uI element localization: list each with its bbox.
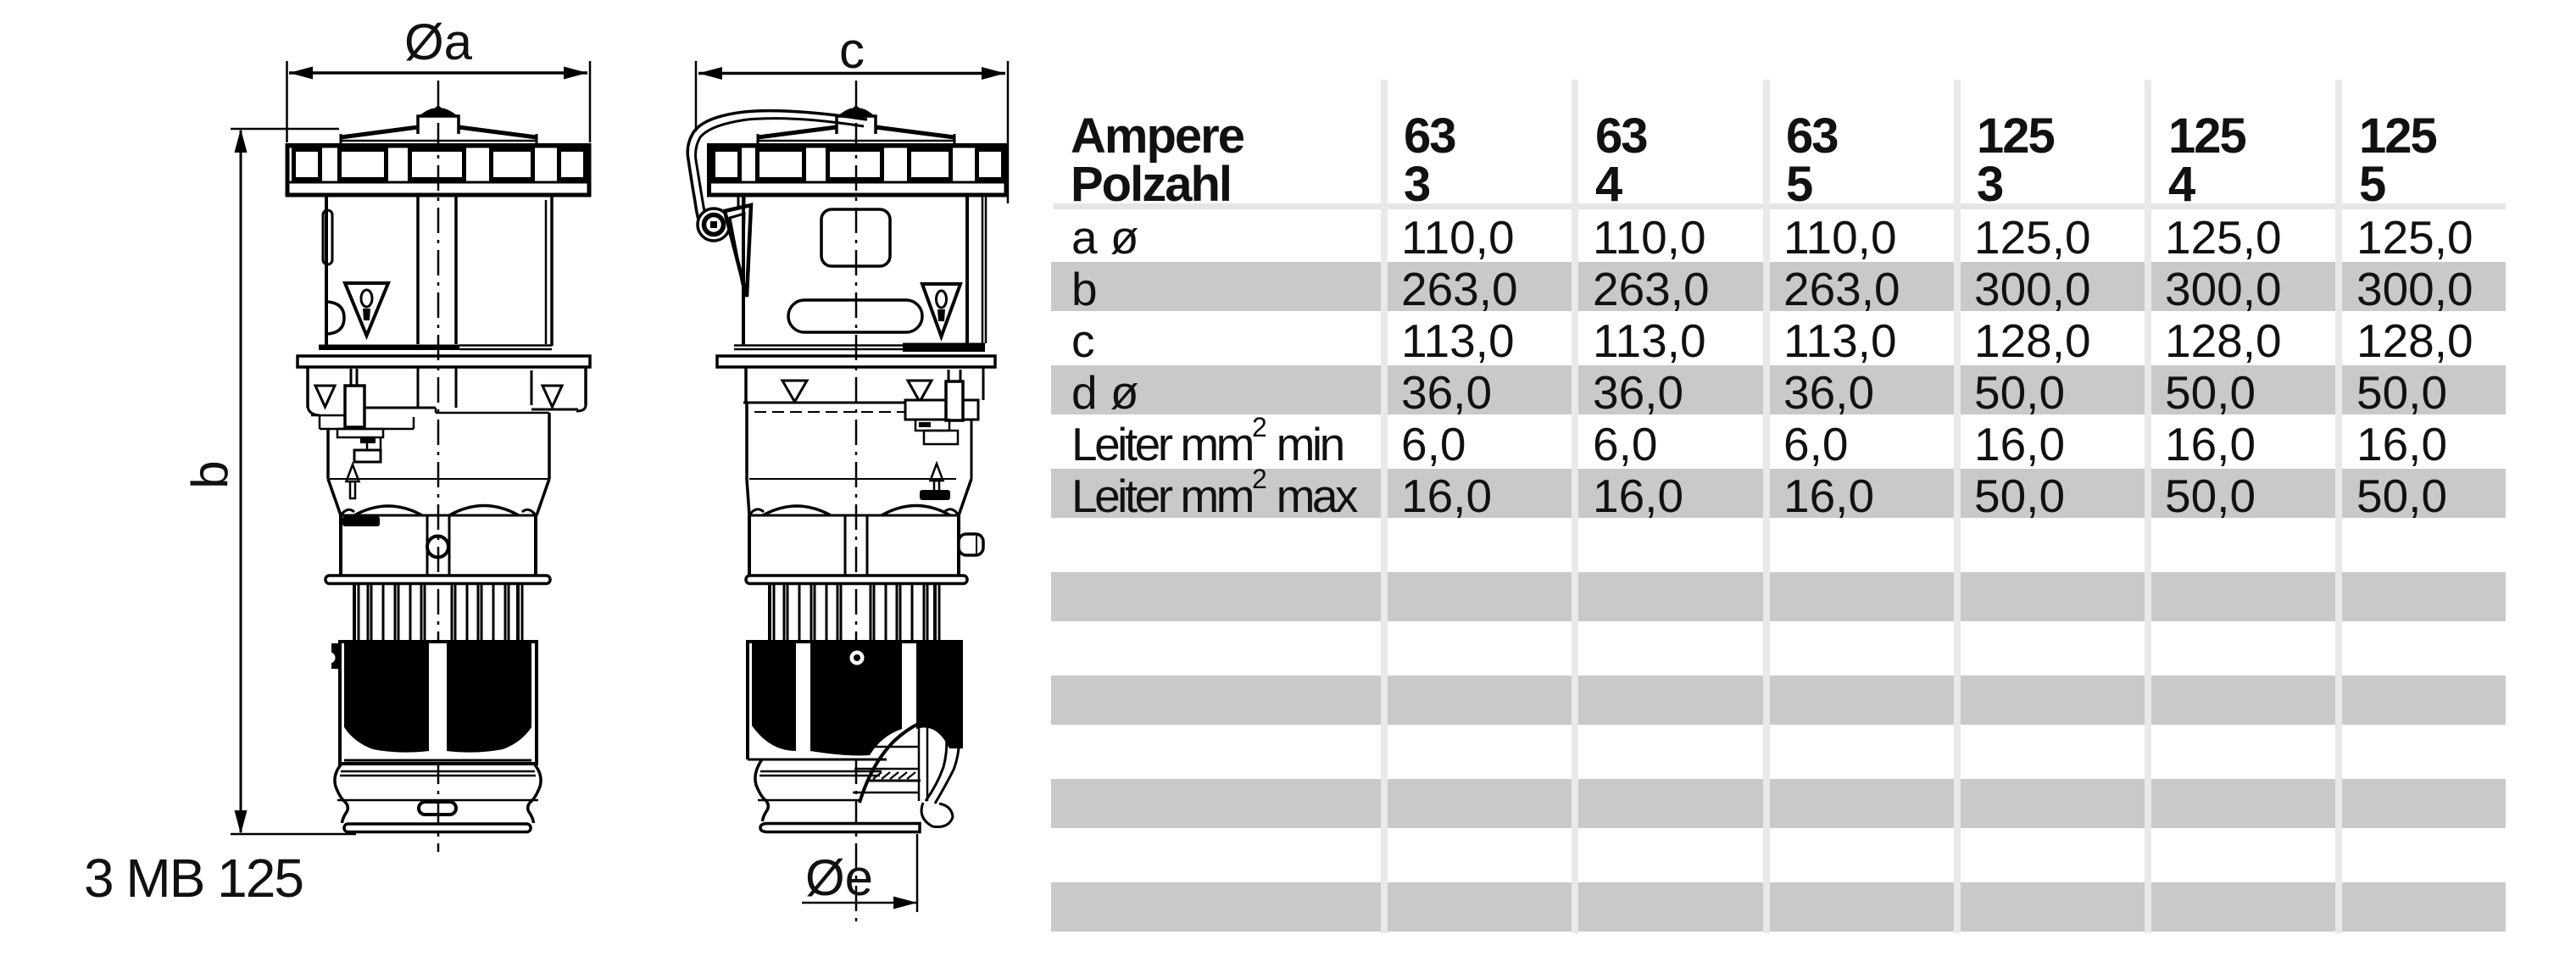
svg-text:Øe: Øe xyxy=(805,849,873,906)
svg-text:Øa: Øa xyxy=(404,14,473,70)
svg-text:b: b xyxy=(181,460,238,488)
svg-text:c: c xyxy=(839,22,865,79)
